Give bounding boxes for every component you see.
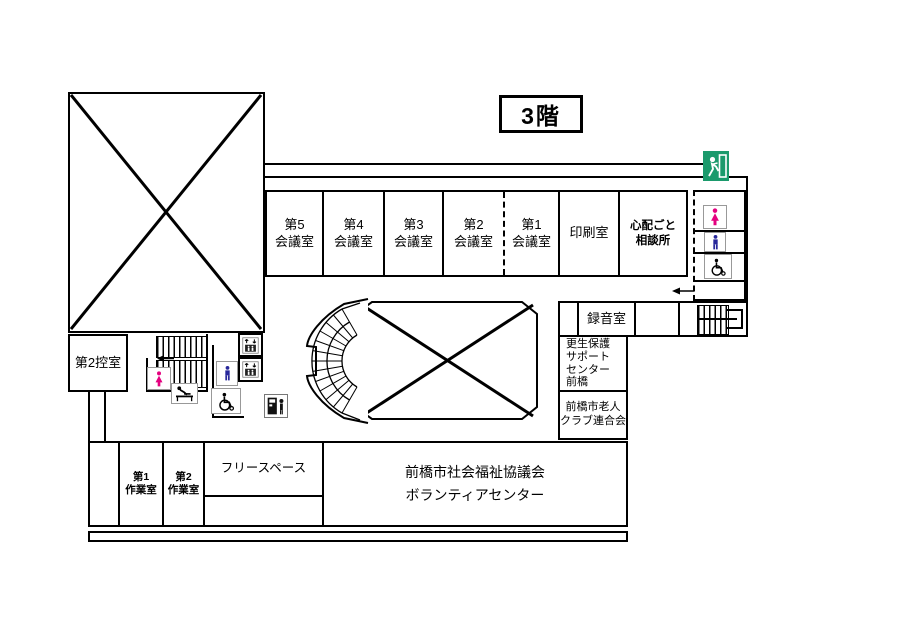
room-workshop-2: 第2 作業室 — [162, 443, 203, 525]
room-elderly-club: 前橋市老人 クラブ連合会 — [558, 390, 628, 440]
room-waiting-2-label: 第2控室 — [70, 336, 126, 390]
direction-arrow-icon — [672, 286, 696, 296]
bottom-corridor — [88, 531, 628, 542]
small-room — [560, 303, 577, 335]
floor-map-3f: 3階 第5 会議室 第4 会議室 第3 会議室 第2 会議室 第1 会議室 印刷… — [0, 0, 915, 617]
room-elderly-club-label: 前橋市老人 クラブ連合会 — [560, 392, 626, 438]
baby-changing-icon — [171, 383, 198, 404]
curved-stairs-icon — [307, 299, 368, 423]
direction-arrow-icon — [157, 354, 175, 363]
cross-out-x — [70, 94, 262, 330]
free-space-lower — [205, 497, 322, 525]
wheelchair-icon — [211, 388, 241, 414]
room-workshop-1: 第1 作業室 — [118, 443, 162, 525]
room-free-space: フリースペース — [203, 443, 322, 525]
floor-title: 3階 — [499, 95, 583, 133]
male-toilet-icon — [216, 361, 238, 386]
room-meeting-1: 第1 会議室 — [503, 192, 558, 275]
large-hall-void — [68, 92, 265, 333]
room-waiting-2: 第2控室 — [68, 334, 128, 392]
room-meeting-2: 第2 会議室 — [442, 192, 503, 275]
central-hall-void — [298, 290, 548, 430]
room-rehabilitation-support-label: 更生保護 サポート センター 前橋 — [560, 337, 626, 390]
room-free-space-label: フリースペース — [205, 443, 322, 497]
female-toilet-icon — [147, 367, 171, 390]
room-meeting-3: 第3 会議室 — [383, 192, 442, 275]
male-toilet-icon — [704, 232, 726, 252]
wall-segment — [212, 416, 244, 418]
vending-machine-icon — [264, 394, 288, 418]
meeting-room-row: 第5 会議室 第4 会議室 第3 会議室 第2 会議室 第1 会議室 印刷室 心… — [265, 190, 688, 277]
room-worry-consultation: 心配ごと 相談所 — [618, 192, 686, 275]
corridor-wall-top — [265, 176, 748, 178]
stairs-right-icon — [697, 305, 729, 335]
small-room — [90, 443, 118, 525]
wall-segment — [206, 334, 208, 392]
wheelchair-icon — [704, 254, 732, 279]
small-room — [634, 303, 678, 335]
female-toilet-icon — [703, 205, 727, 229]
stairs-right-midline — [697, 318, 737, 320]
emergency-exit-icon — [703, 151, 729, 181]
room-rehabilitation-support: 更生保護 サポート センター 前橋 — [558, 335, 628, 392]
room-meeting-5: 第5 会議室 — [267, 192, 322, 275]
restroom-divider — [693, 280, 746, 282]
room-print: 印刷室 — [558, 192, 618, 275]
room-recording: 録音室 — [577, 303, 634, 335]
bottom-room-block: 第1 作業室 第2 作業室 フリースペース 前橋市社会福祉協議会 ボランティアセ… — [88, 441, 628, 527]
corridor-wall — [88, 392, 90, 443]
elevator-icon — [238, 333, 263, 357]
corridor-wall — [104, 392, 106, 443]
outer-wall-top — [265, 163, 705, 165]
elevator-icon — [238, 357, 263, 382]
room-meeting-4: 第4 会議室 — [322, 192, 383, 275]
room-volunteer-center: 前橋市社会福祉協議会 ボランティアセンター — [322, 443, 626, 525]
